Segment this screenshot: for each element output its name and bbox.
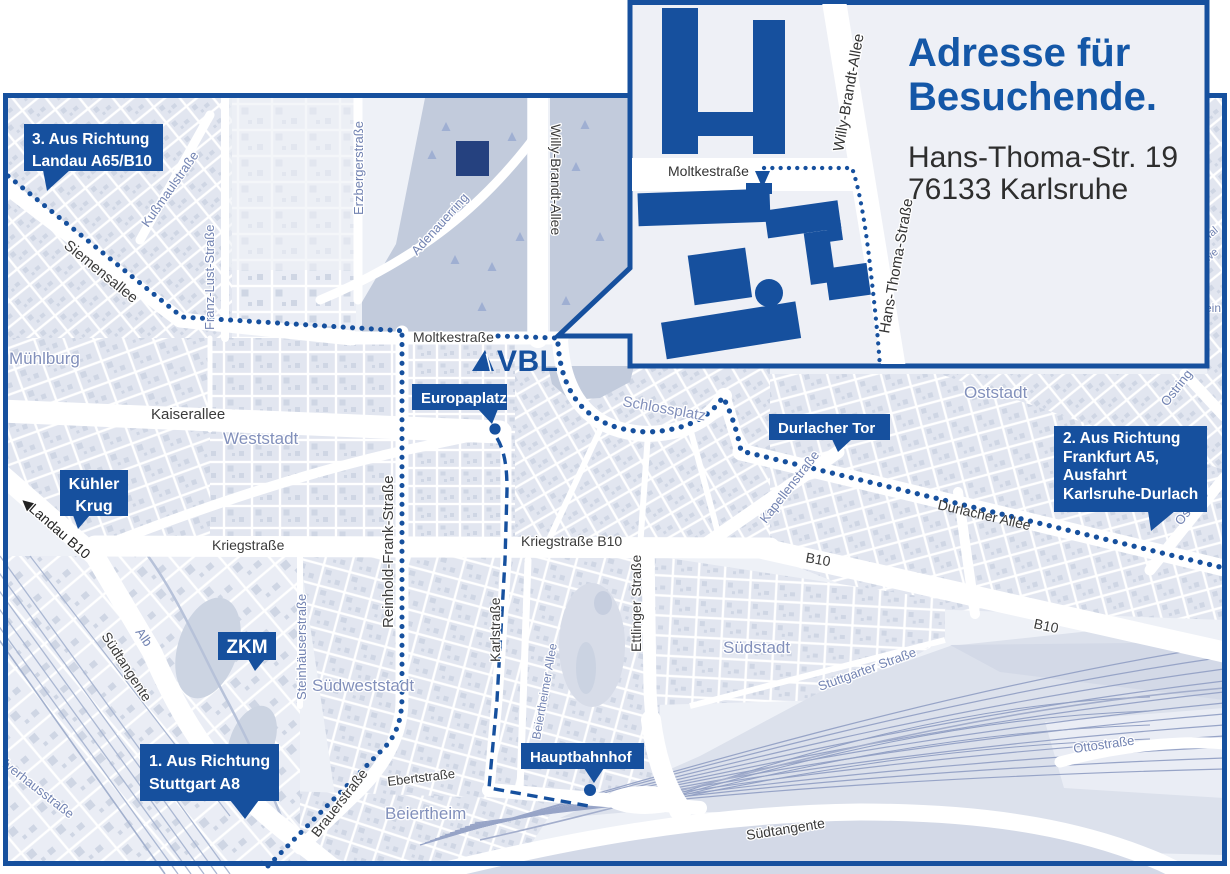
svg-text:Krug: Krug — [75, 498, 112, 515]
svg-text:Europaplatz: Europaplatz — [421, 390, 507, 407]
svg-text:2. Aus Richtung: 2. Aus Richtung — [1063, 430, 1180, 447]
svg-text:Besuchende.: Besuchende. — [908, 75, 1157, 119]
svg-text:ZKM: ZKM — [226, 637, 267, 658]
svg-text:Karlstraße: Karlstraße — [487, 597, 503, 662]
svg-text:Weststadt: Weststadt — [223, 429, 299, 448]
svg-text:Hauptbahnhof: Hauptbahnhof — [530, 749, 633, 766]
svg-text:Ettlinger Straße: Ettlinger Straße — [628, 555, 644, 652]
svg-text:Mühlburg: Mühlburg — [9, 349, 80, 368]
svg-text:Adresse für: Adresse für — [908, 31, 1130, 75]
svg-text:Stuttgart A8: Stuttgart A8 — [149, 776, 240, 793]
svg-text:Frankfurt A5,: Frankfurt A5, — [1063, 449, 1159, 466]
svg-text:Südweststadt: Südweststadt — [312, 676, 414, 695]
svg-text:Franz-Lust-Straße: Franz-Lust-Straße — [202, 225, 217, 330]
svg-text:Kriegstraße B10: Kriegstraße B10 — [521, 533, 622, 549]
svg-text:Hans-Thoma-Str. 19: Hans-Thoma-Str. 19 — [908, 141, 1178, 174]
svg-text:Erzbergerstraße: Erzbergerstraße — [351, 121, 366, 215]
svg-text:Oststadt: Oststadt — [964, 383, 1028, 402]
svg-text:Willy-Brandt-Allee: Willy-Brandt-Allee — [548, 124, 564, 235]
svg-text:Ausfahrt: Ausfahrt — [1063, 467, 1127, 484]
svg-text:76133 Karlsruhe: 76133 Karlsruhe — [908, 173, 1128, 206]
svg-text:Beiertheim: Beiertheim — [385, 804, 466, 823]
svg-text:Kühler: Kühler — [69, 476, 120, 493]
svg-text:Reinhold-Frank-Straße: Reinhold-Frank-Straße — [380, 475, 397, 628]
svg-text:Durlacher Tor: Durlacher Tor — [778, 420, 875, 437]
svg-text:1. Aus Richtung: 1. Aus Richtung — [149, 753, 270, 770]
svg-text:Landau A65/B10: Landau A65/B10 — [32, 153, 152, 170]
svg-text:Moltkestraße: Moltkestraße — [668, 163, 749, 179]
svg-text:Steinhäuserstraße: Steinhäuserstraße — [294, 594, 309, 700]
svg-text:Kriegstraße: Kriegstraße — [212, 537, 285, 553]
svg-text:Südstadt: Südstadt — [723, 638, 790, 657]
svg-text:Kaiserallee: Kaiserallee — [151, 406, 225, 423]
svg-text:3. Aus Richtung: 3. Aus Richtung — [32, 131, 149, 148]
svg-text:VBL: VBL — [497, 345, 559, 378]
svg-text:Karlsruhe-Durlach: Karlsruhe-Durlach — [1063, 486, 1198, 503]
svg-text:Moltkestraße: Moltkestraße — [413, 329, 494, 345]
